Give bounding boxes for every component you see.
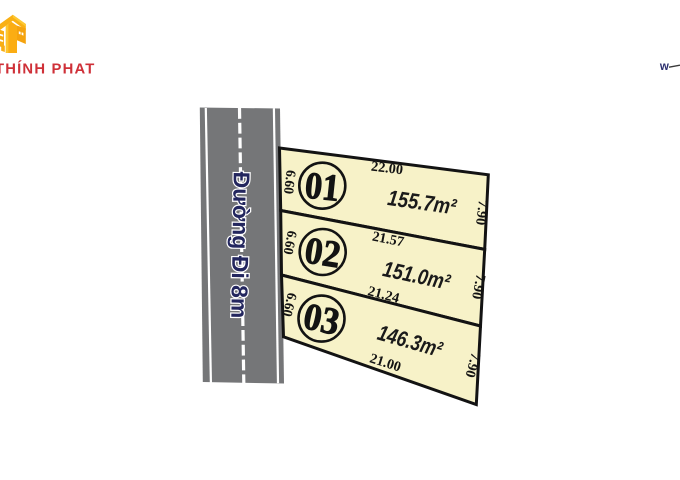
svg-text:w: w (659, 61, 669, 73)
svg-text:02: 02 (302, 229, 344, 276)
svg-text:Đường Đi 8m: Đường Đi 8m (226, 171, 255, 318)
svg-text:01: 01 (303, 165, 342, 210)
svg-text:7.90: 7.90 (472, 199, 490, 226)
svg-text:THÍNH PHAT: THÍNH PHAT (0, 61, 96, 78)
svg-text:6.60: 6.60 (280, 169, 298, 195)
